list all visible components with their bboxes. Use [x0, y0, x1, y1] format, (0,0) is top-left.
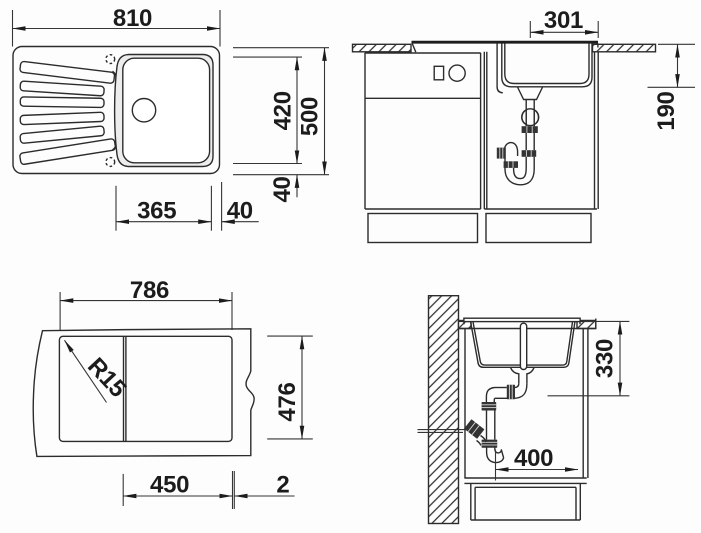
svg-text:476: 476 — [274, 382, 301, 421]
svg-text:786: 786 — [130, 277, 169, 304]
svg-text:365: 365 — [137, 197, 176, 224]
svg-text:2: 2 — [276, 472, 289, 499]
svg-text:190: 190 — [653, 91, 680, 130]
svg-text:500: 500 — [297, 97, 324, 136]
svg-text:330: 330 — [592, 339, 619, 378]
svg-text:810: 810 — [113, 5, 152, 32]
svg-text:301: 301 — [544, 7, 583, 34]
svg-text:450: 450 — [150, 472, 189, 499]
svg-text:40: 40 — [269, 176, 296, 202]
svg-text:420: 420 — [270, 91, 297, 130]
svg-text:400: 400 — [514, 445, 553, 472]
svg-text:40: 40 — [227, 197, 253, 224]
